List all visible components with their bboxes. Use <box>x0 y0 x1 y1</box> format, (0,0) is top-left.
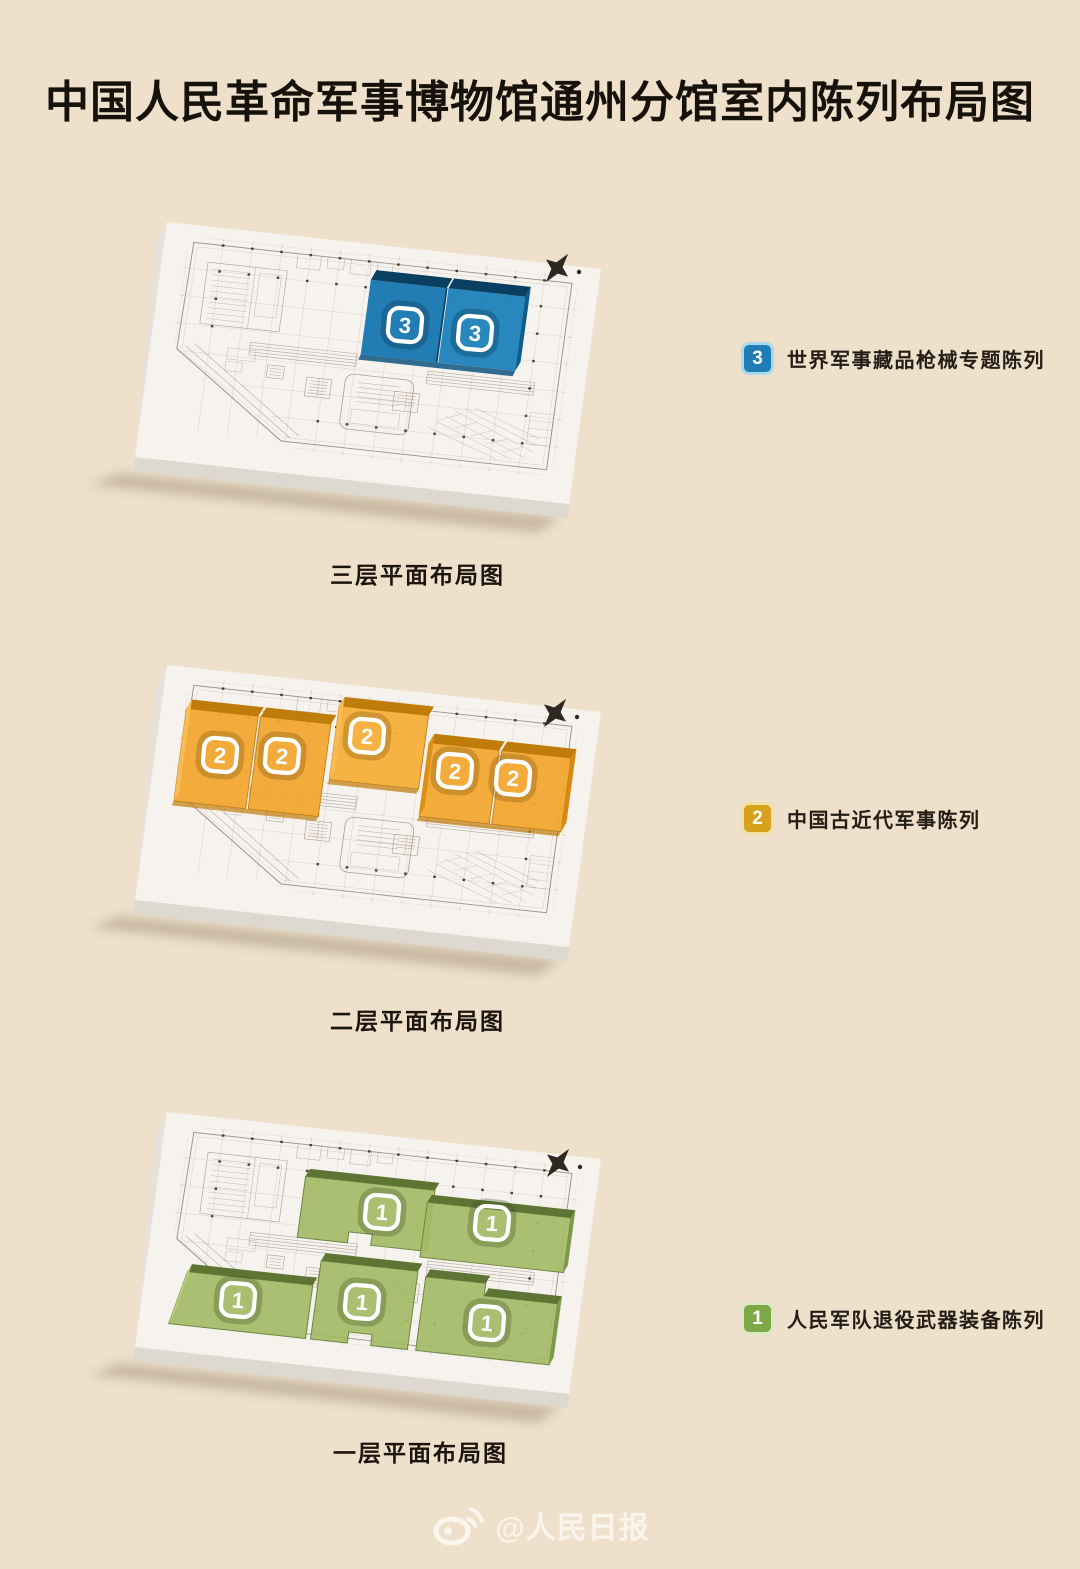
floor-1-legend-badge: 1 <box>741 1302 774 1335</box>
floor-3-caption: 三层平面布局图 <box>330 556 505 590</box>
exhibit-marker-2b: 2 <box>260 734 303 777</box>
weibo-icon <box>430 1502 486 1548</box>
floor-2-legend-badge: 2 <box>741 802 774 835</box>
exhibit-marker-2c: 2 <box>345 714 388 757</box>
floor-3-legend-badge: 3 <box>741 342 774 375</box>
floor-3-board <box>90 222 601 533</box>
watermark: @人民日报 <box>0 1502 1080 1548</box>
marker-number: 1 <box>480 1311 494 1337</box>
marker-number: 2 <box>506 766 520 792</box>
exhibit-marker-3b: 3 <box>453 311 496 354</box>
exhibit-marker-1c: 1 <box>216 1278 259 1321</box>
floor-1-caption: 一层平面布局图 <box>333 1434 508 1468</box>
exhibit-marker-2e: 2 <box>491 756 534 799</box>
exhibit-marker-1b: 1 <box>470 1201 513 1244</box>
floor-3-plan: 3 3 <box>60 185 720 585</box>
marker-number: 3 <box>398 313 412 339</box>
marker-number: 1 <box>485 1211 499 1237</box>
floor-2-legend-label: 中国古近代军事陈列 <box>787 804 981 833</box>
marker-number: 2 <box>213 743 227 769</box>
floor-1-legend-label: 人民军队退役武器装备陈列 <box>787 1304 1045 1333</box>
exhibit-marker-1a: 1 <box>360 1190 403 1233</box>
floor-2-legend: 2 中国古近代军事陈列 <box>741 802 981 835</box>
floor-3-legend-label: 世界军事藏品枪械专题陈列 <box>787 344 1045 373</box>
watermark-label: @人民日报 <box>495 1503 649 1547</box>
infographic-canvas: 中国人民革命军事博物馆通州分馆室内陈列布局图 <box>0 0 1080 1569</box>
marker-number: 1 <box>355 1290 369 1316</box>
marker-number: 2 <box>360 724 374 750</box>
marker-number: 3 <box>468 321 482 347</box>
exhibit-marker-2a: 2 <box>198 733 241 776</box>
page-title: 中国人民革命军事博物馆通州分馆室内陈列布局图 <box>0 66 1080 130</box>
floor-2-caption: 二层平面布局图 <box>330 1002 505 1036</box>
floor-1-legend: 1 人民军队退役武器装备陈列 <box>741 1302 1045 1335</box>
exhibit-marker-2d: 2 <box>433 749 476 792</box>
marker-number: 1 <box>231 1288 245 1314</box>
exhibit-marker-1e: 1 <box>465 1301 508 1344</box>
floor-3-legend: 3 世界军事藏品枪械专题陈列 <box>741 342 1045 375</box>
marker-number: 1 <box>375 1200 389 1226</box>
floor-2-plan: 2 2 2 2 2 <box>60 628 720 1028</box>
marker-number: 2 <box>275 744 289 770</box>
floor-1-plan: 1 1 1 1 1 <box>60 1075 720 1475</box>
exhibit-marker-3a: 3 <box>383 303 426 346</box>
marker-number: 2 <box>448 759 462 785</box>
exhibit-marker-1d: 1 <box>340 1280 383 1323</box>
